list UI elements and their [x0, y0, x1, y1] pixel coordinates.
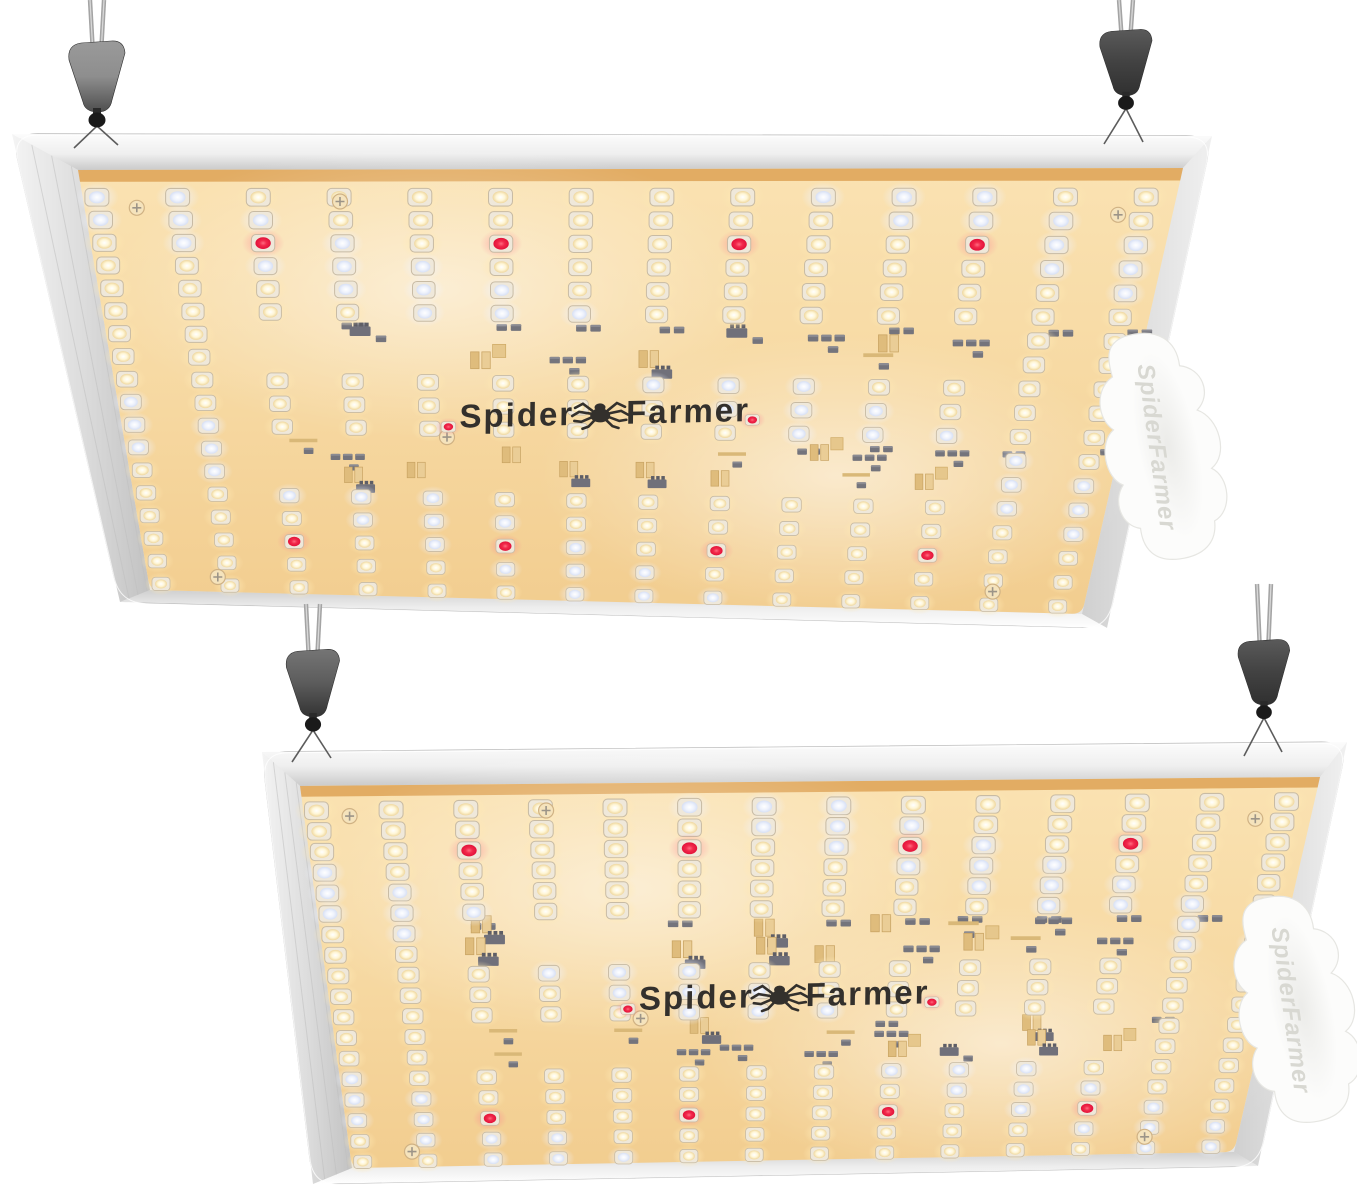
led: [672, 1082, 707, 1106]
led: [274, 506, 309, 530]
screw-icon: [539, 803, 554, 818]
led: [606, 1125, 640, 1148]
led: [768, 564, 802, 587]
led: [346, 1151, 379, 1174]
smd-component: [1063, 330, 1073, 337]
led: [419, 556, 453, 579]
smd-component: [986, 926, 999, 939]
smd-component: [875, 1021, 885, 1027]
led: [190, 413, 227, 439]
smd-component: [827, 1030, 855, 1034]
led: [558, 583, 591, 606]
led: [261, 391, 299, 417]
ratchet-hanger: [1238, 584, 1290, 756]
smd-component: [923, 957, 933, 964]
led: [1016, 995, 1053, 1021]
led: [998, 448, 1035, 473]
led: [1199, 1115, 1233, 1138]
led: [120, 435, 157, 460]
red-led: [871, 1100, 905, 1124]
led: [714, 301, 755, 329]
smd-component: [948, 921, 978, 925]
smd-component: [953, 340, 963, 347]
led: [343, 485, 378, 510]
product-photo-stage: SpiderFarmerSpiderFarmerSpiderFarmerSpid…: [0, 0, 1357, 1190]
led: [487, 487, 522, 512]
brand-logo-text-2: Farmer: [626, 391, 750, 431]
led: [542, 1147, 575, 1170]
led: [347, 531, 381, 555]
smd-component: [732, 461, 742, 467]
led: [343, 1130, 377, 1153]
led: [985, 521, 1020, 545]
led: [1002, 424, 1039, 450]
led: [1051, 546, 1085, 570]
led: [402, 1066, 437, 1091]
led: [469, 1065, 504, 1090]
led: [738, 1123, 772, 1146]
led: [1056, 522, 1091, 546]
led: [180, 344, 219, 371]
led: [207, 528, 241, 552]
led: [702, 491, 737, 516]
led: [868, 1141, 901, 1164]
led: [805, 1101, 839, 1125]
led: [1110, 255, 1152, 284]
led: [489, 558, 523, 581]
screw-icon: [1111, 207, 1126, 222]
led: [813, 894, 854, 922]
smd-component: [509, 1061, 518, 1067]
led: [627, 585, 660, 608]
led: [628, 561, 662, 584]
led: [337, 415, 374, 441]
smd-component: [871, 465, 881, 471]
led: [283, 576, 316, 599]
led: [914, 519, 949, 543]
led: [672, 1124, 706, 1147]
led: [559, 489, 594, 514]
led: [538, 1085, 573, 1109]
smd-component: [1123, 938, 1133, 945]
led: [108, 366, 147, 393]
led: [559, 300, 600, 328]
hanger-pulley: [1256, 705, 1272, 719]
led: [415, 486, 450, 511]
smd-component: [1062, 917, 1072, 924]
led: [197, 459, 233, 484]
led: [917, 495, 952, 520]
led: [770, 540, 804, 564]
led: [597, 897, 638, 925]
led: [1027, 279, 1068, 307]
led: [1207, 1074, 1242, 1098]
led: [193, 436, 230, 461]
led: [868, 302, 909, 330]
smd-component: [903, 328, 913, 335]
smd-component: [808, 335, 818, 342]
smd-component: [841, 920, 851, 927]
led: [903, 592, 936, 615]
led: [183, 367, 222, 394]
smd-component: [590, 325, 600, 332]
smd-component: [744, 1045, 753, 1051]
smd-component: [1110, 938, 1120, 945]
smd-component: [1131, 915, 1141, 922]
led: [805, 1080, 840, 1104]
smd-component: [550, 357, 560, 364]
ratchet-hanger: [286, 604, 339, 762]
smd-component: [865, 455, 875, 461]
led: [872, 1079, 907, 1103]
led: [559, 536, 593, 560]
smd-component: [821, 335, 831, 342]
led: [337, 1088, 372, 1112]
led: [933, 1140, 966, 1163]
smd-component: [614, 1029, 642, 1033]
led: [1061, 498, 1096, 523]
screw-icon: [129, 200, 144, 215]
smd-component: [489, 1029, 517, 1033]
led: [404, 1087, 439, 1111]
led: [840, 542, 874, 566]
screw-icon: [405, 1144, 420, 1159]
led: [525, 897, 566, 925]
smd-component: [828, 1051, 837, 1057]
led: [272, 483, 307, 508]
led: [1071, 449, 1108, 474]
led: [475, 1127, 509, 1150]
smd-component: [355, 454, 365, 460]
led: [1041, 595, 1074, 618]
led: [484, 370, 523, 397]
led: [784, 373, 823, 400]
led: [454, 898, 495, 926]
led: [846, 494, 881, 519]
smd-component: [718, 452, 746, 456]
smd-component: [1055, 929, 1065, 936]
led: [1203, 1094, 1237, 1118]
screw-icon: [210, 570, 225, 585]
led: [738, 1102, 772, 1126]
led: [928, 423, 965, 449]
led: [1006, 1077, 1041, 1101]
led: [200, 482, 235, 507]
smd-component: [979, 340, 989, 347]
led: [791, 301, 832, 329]
led: [1100, 891, 1141, 919]
led: [935, 375, 974, 402]
led: [854, 422, 891, 448]
led: [463, 1002, 500, 1028]
led: [672, 1145, 705, 1168]
hanger-pulley: [305, 717, 321, 731]
smd-component: [494, 1052, 522, 1055]
led: [945, 302, 986, 330]
led: [782, 397, 820, 423]
led: [559, 559, 593, 582]
led: [405, 299, 446, 327]
brand-logo-text-2: Farmer: [805, 973, 929, 1013]
led: [937, 1099, 971, 1123]
led: [128, 481, 163, 506]
red-led: [473, 1107, 507, 1131]
smd-component: [797, 449, 807, 455]
led: [532, 1001, 569, 1027]
hanger-body: [69, 41, 125, 112]
smd-component: [834, 335, 844, 342]
led: [741, 895, 782, 923]
led: [999, 1139, 1032, 1162]
led: [1004, 1098, 1038, 1122]
smd-component: [842, 473, 870, 476]
led: [136, 527, 170, 551]
led: [124, 458, 160, 483]
smd-component: [863, 353, 893, 357]
led: [112, 389, 150, 415]
screw-icon: [342, 809, 357, 824]
smd-component: [935, 450, 945, 456]
led: [989, 497, 1024, 522]
led: [1211, 1053, 1246, 1078]
led: [264, 414, 301, 440]
led: [1006, 400, 1044, 426]
screw-icon: [333, 194, 348, 209]
panel-top: SpiderFarmerSpiderFarmer: [12, 0, 1242, 628]
smd-component: [732, 1045, 741, 1051]
led: [410, 392, 448, 418]
smd-component: [1097, 938, 1107, 945]
smd-component: [935, 467, 947, 479]
smd-component: [883, 446, 893, 452]
led: [1100, 303, 1141, 331]
led: [935, 1119, 969, 1142]
led: [738, 1144, 771, 1167]
led: [993, 472, 1029, 497]
smd-component: [1011, 936, 1041, 940]
smd-component: [960, 450, 970, 456]
led: [186, 390, 224, 416]
led: [104, 343, 143, 370]
led: [1023, 303, 1064, 331]
smd-component: [899, 1031, 909, 1037]
smd-component: [701, 1049, 710, 1055]
led: [539, 1105, 573, 1129]
led: [141, 550, 175, 573]
smd-component: [738, 1055, 747, 1061]
led: [669, 896, 710, 924]
screw-icon: [985, 584, 1000, 599]
smd-component: [1124, 1028, 1136, 1040]
smd-component: [493, 344, 506, 357]
smd-component: [887, 1031, 897, 1037]
led: [605, 1084, 640, 1108]
screw-icon: [1248, 811, 1263, 826]
led: [1073, 1076, 1108, 1100]
led: [1010, 376, 1049, 403]
led: [606, 1104, 640, 1128]
led: [774, 493, 809, 518]
smd-component: [563, 357, 573, 364]
led: [698, 563, 732, 586]
smd-component: [674, 327, 684, 334]
led: [421, 579, 454, 602]
red-led: [672, 1103, 706, 1127]
led: [804, 1122, 838, 1145]
red-led: [910, 543, 944, 567]
smd-component: [689, 1049, 698, 1055]
led: [772, 516, 807, 540]
smd-component: [304, 448, 314, 454]
led: [696, 586, 729, 609]
led: [834, 590, 867, 613]
led: [250, 298, 291, 326]
smd-component: [289, 439, 317, 443]
led: [857, 398, 895, 424]
led: [907, 568, 941, 591]
smd-component: [916, 946, 926, 953]
smd-component: [831, 438, 843, 450]
smd-component: [947, 450, 957, 456]
led: [837, 566, 871, 589]
smd-component: [343, 454, 353, 460]
led: [203, 505, 238, 529]
led: [636, 300, 677, 328]
red-led: [1070, 1096, 1104, 1120]
led: [931, 399, 969, 425]
red-led: [488, 534, 522, 558]
smd-component: [874, 1031, 884, 1037]
led: [116, 412, 153, 438]
led: [1018, 327, 1058, 355]
hanger-pulley: [89, 113, 106, 128]
led: [949, 278, 990, 306]
led: [409, 369, 448, 396]
led: [1067, 1117, 1101, 1140]
led: [1136, 1095, 1170, 1119]
smd-component: [677, 1049, 686, 1055]
smd-component: [720, 1045, 729, 1051]
led: [489, 581, 522, 604]
hanger-pulley: [1118, 96, 1134, 110]
led: [352, 578, 385, 601]
led: [1194, 1135, 1227, 1158]
smd-component: [879, 363, 889, 370]
led: [1076, 1055, 1111, 1080]
led: [536, 1064, 571, 1089]
led: [1028, 892, 1069, 920]
smd-component: [504, 1038, 514, 1044]
led: [145, 573, 178, 596]
led: [350, 555, 384, 578]
smd-component: [954, 461, 964, 467]
smd-component: [966, 340, 976, 347]
led: [1066, 474, 1102, 499]
panel-bottom: SpiderFarmerSpiderFarmer: [262, 584, 1357, 1185]
led: [630, 514, 665, 538]
led: [630, 490, 665, 515]
led: [843, 518, 878, 542]
screw-icon: [1137, 1129, 1152, 1144]
led: [1031, 255, 1073, 284]
smd-component: [877, 455, 887, 461]
smd-component: [752, 337, 762, 344]
led: [981, 545, 1015, 569]
led: [406, 1108, 440, 1132]
smd-component: [629, 1038, 639, 1044]
smd-component: [828, 346, 838, 353]
smd-component: [930, 946, 940, 953]
led: [477, 1148, 510, 1171]
hanger-body: [1100, 29, 1152, 95]
led: [780, 421, 817, 447]
red-led: [699, 539, 733, 563]
led: [418, 533, 452, 557]
smd-component: [919, 918, 929, 925]
hanger-body: [1238, 639, 1290, 704]
led: [739, 1081, 774, 1105]
smd-component: [804, 1051, 813, 1057]
led: [871, 278, 912, 306]
led: [885, 893, 926, 921]
smd-component: [376, 335, 386, 342]
led: [1105, 279, 1146, 307]
led: [1001, 1118, 1035, 1141]
ratchet-hanger: [1100, 0, 1152, 144]
smd-component: [857, 482, 866, 488]
led: [471, 1086, 506, 1110]
led: [334, 1067, 369, 1092]
led: [1014, 351, 1053, 378]
smd-component: [909, 1034, 921, 1046]
led: [488, 511, 523, 535]
led: [335, 392, 373, 418]
led: [559, 371, 598, 398]
led: [327, 298, 368, 326]
smd-component: [331, 454, 341, 460]
led: [701, 515, 736, 539]
led: [629, 537, 663, 561]
smd-component: [841, 1040, 851, 1046]
brand-logo-text-1: Spider: [639, 977, 754, 1017]
ratchet-hanger: [69, 0, 125, 148]
led: [280, 553, 314, 576]
led: [340, 1109, 374, 1133]
led: [541, 1126, 575, 1149]
led: [559, 512, 594, 536]
led: [607, 1146, 640, 1169]
led: [258, 367, 297, 394]
hanger-body: [286, 649, 339, 717]
led: [333, 368, 372, 395]
led: [132, 504, 167, 528]
red-led: [277, 530, 311, 554]
smd-component: [668, 921, 678, 928]
smd-component: [973, 351, 983, 358]
smd-component: [903, 946, 913, 953]
led: [765, 588, 798, 611]
led: [860, 374, 899, 401]
led: [947, 996, 984, 1022]
brand-logo-text-1: Spider: [459, 395, 574, 435]
smd-component: [816, 1051, 825, 1057]
smd-component: [853, 455, 863, 461]
led: [1140, 1075, 1175, 1099]
led: [1046, 571, 1080, 594]
led: [345, 508, 380, 532]
led: [870, 1121, 904, 1144]
led: [416, 509, 451, 533]
